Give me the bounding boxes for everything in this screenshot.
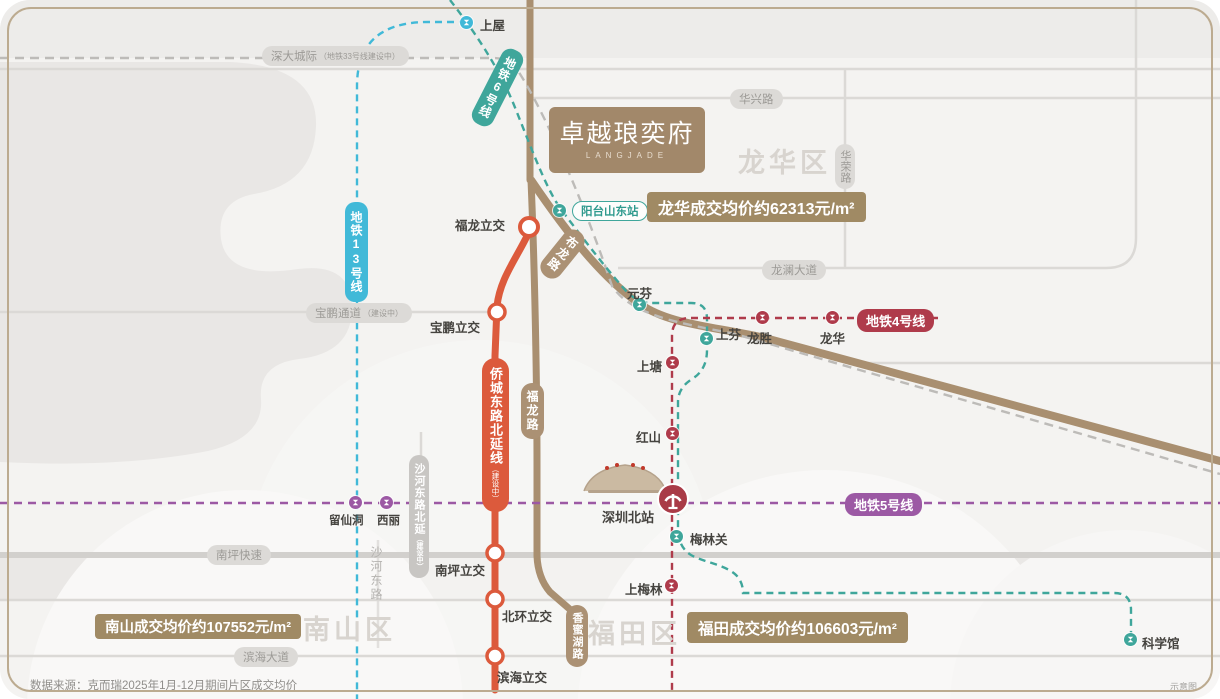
metro-logo-icon bbox=[351, 498, 360, 507]
brand-subtitle: LANGJADE bbox=[586, 151, 668, 160]
road-shahe: 沙河东路 bbox=[368, 546, 385, 602]
station-marker-shangfen[interactable] bbox=[700, 332, 713, 345]
station-label-shenzhen-north: 深圳北站 bbox=[602, 507, 654, 526]
road-shahe-ext-note: （建设中） bbox=[414, 535, 424, 570]
line13-pill: 地铁13号线 bbox=[345, 202, 368, 302]
station-label-shangmeilin: 上梅林 bbox=[625, 579, 663, 598]
road-shahe-ext-label: 沙河东路北延 bbox=[411, 463, 427, 535]
district-futian: 福田区 bbox=[588, 612, 681, 651]
intercity-pill: 深大城际 （地铁33号线建设中） bbox=[262, 46, 409, 66]
line5-pill: 地铁5号线 bbox=[845, 493, 922, 516]
metro-logo-icon bbox=[828, 313, 837, 322]
road-qiaocheng-note: （建设中） bbox=[490, 465, 501, 503]
terrain-blob bbox=[0, 62, 352, 464]
intercity-note: （地铁33号线建设中） bbox=[319, 51, 400, 62]
metro-logo-icon bbox=[758, 313, 767, 322]
line4-pill: 地铁4号线 bbox=[857, 309, 934, 332]
station-label-kexueguan: 科学馆 bbox=[1142, 633, 1180, 652]
station-marker-longhua[interactable] bbox=[826, 311, 839, 324]
station-label-liuxiandong: 留仙洞 bbox=[329, 512, 364, 528]
interchange-fulong: 福龙立交 bbox=[455, 215, 505, 234]
station-marker-kexueguan[interactable] bbox=[1124, 633, 1137, 646]
station-label-shangtang: 上塘 bbox=[637, 356, 662, 375]
station-label-meilinguan: 梅林关 bbox=[690, 529, 728, 548]
road-baopeng-label: 宝鹏通道 bbox=[315, 305, 361, 321]
road-shahe-ext: 沙河东路北延 （建设中） bbox=[409, 455, 429, 578]
schematic-note: 示意图 bbox=[1170, 680, 1197, 693]
metro-logo-icon bbox=[668, 358, 677, 367]
metro-logo-icon bbox=[667, 581, 676, 590]
station-label-yuanfen: 元芬 bbox=[627, 283, 652, 302]
brand-card[interactable]: 卓越琅奕府 LANGJADE bbox=[549, 107, 705, 173]
station-pill-yangtaishan-east[interactable]: 阳台山东站 bbox=[572, 201, 648, 221]
road-longlan: 龙澜大道 bbox=[762, 260, 826, 280]
intercity-label: 深大城际 bbox=[271, 48, 317, 64]
map-geometry bbox=[0, 0, 1220, 699]
metro-logo-icon bbox=[702, 334, 711, 343]
road-binhai: 滨海大道 bbox=[234, 647, 298, 667]
road-baopeng: 宝鹏通道 （建设中） bbox=[306, 303, 412, 323]
road-nanping: 南坪快速 bbox=[207, 545, 271, 565]
price-badge-futian: 福田成交均价约106603元/m² bbox=[687, 612, 908, 643]
metro-logo-icon bbox=[382, 498, 391, 507]
station-label-longsheng: 龙胜 bbox=[747, 328, 772, 347]
metro-logo-icon bbox=[672, 532, 681, 541]
interchange-baopeng: 宝鹏立交 bbox=[430, 317, 480, 336]
map-canvas: 龙华区 南山区 福田区 卓越琅奕府 LANGJADE 龙华成交均价约62313元… bbox=[0, 0, 1220, 699]
station-marker-shangtang[interactable] bbox=[666, 356, 679, 369]
interchange-beihuan: 北环立交 bbox=[502, 606, 552, 625]
road-xiangmihu: 香蜜湖路 bbox=[566, 605, 588, 667]
station-marker-longsheng[interactable] bbox=[756, 311, 769, 324]
road-huaxing: 华兴路 bbox=[730, 89, 783, 109]
road-huarong: 华荣路 bbox=[835, 144, 855, 189]
map-page: 龙华区 南山区 福田区 卓越琅奕府 LANGJADE 龙华成交均价约62313元… bbox=[0, 0, 1220, 699]
railway-station-icon[interactable] bbox=[658, 484, 688, 514]
road-baopeng-note: （建设中） bbox=[363, 308, 403, 319]
station-marker-xili[interactable] bbox=[380, 496, 393, 509]
station-marker-shangwu[interactable] bbox=[460, 16, 473, 29]
road-qiaocheng: 侨城东路北延线 （建设中） bbox=[482, 358, 509, 512]
district-nanshan: 南山区 bbox=[303, 608, 396, 647]
interchange-nanping: 南坪立交 bbox=[435, 560, 485, 579]
station-marker-yangtaishan-east[interactable] bbox=[553, 204, 566, 217]
metro-logo-icon bbox=[462, 18, 471, 27]
station-marker-shangmeilin[interactable] bbox=[665, 579, 678, 592]
data-source-note: 数据来源：克而瑞2025年1月-12月期间片区成交均价 bbox=[30, 677, 297, 693]
price-badge-longhua: 龙华成交均价约62313元/m² bbox=[647, 192, 866, 222]
road-fulong: 福龙路 bbox=[521, 383, 544, 439]
station-label-shangwu: 上屋 bbox=[480, 15, 505, 34]
district-longhua: 龙华区 bbox=[738, 141, 831, 180]
station-label-hongshan: 红山 bbox=[636, 427, 661, 446]
top-band bbox=[0, 0, 1220, 58]
station-marker-liuxiandong[interactable] bbox=[349, 496, 362, 509]
brand-title: 卓越琅奕府 bbox=[559, 120, 694, 148]
station-marker-meilinguan[interactable] bbox=[670, 530, 683, 543]
interchange-binhai: 滨海立交 bbox=[497, 667, 547, 686]
station-label-xili: 西丽 bbox=[377, 512, 400, 528]
metro-logo-icon bbox=[1126, 635, 1135, 644]
metro-logo-icon bbox=[555, 206, 564, 215]
station-label-longhua: 龙华 bbox=[820, 328, 845, 347]
metro-logo-icon bbox=[668, 429, 677, 438]
price-badge-nanshan: 南山成交均价约107552元/m² bbox=[95, 614, 301, 639]
road-qiaocheng-label: 侨城东路北延线 bbox=[486, 367, 505, 465]
station-marker-hongshan[interactable] bbox=[666, 427, 679, 440]
station-label-shangfen: 上芬 bbox=[716, 324, 741, 343]
